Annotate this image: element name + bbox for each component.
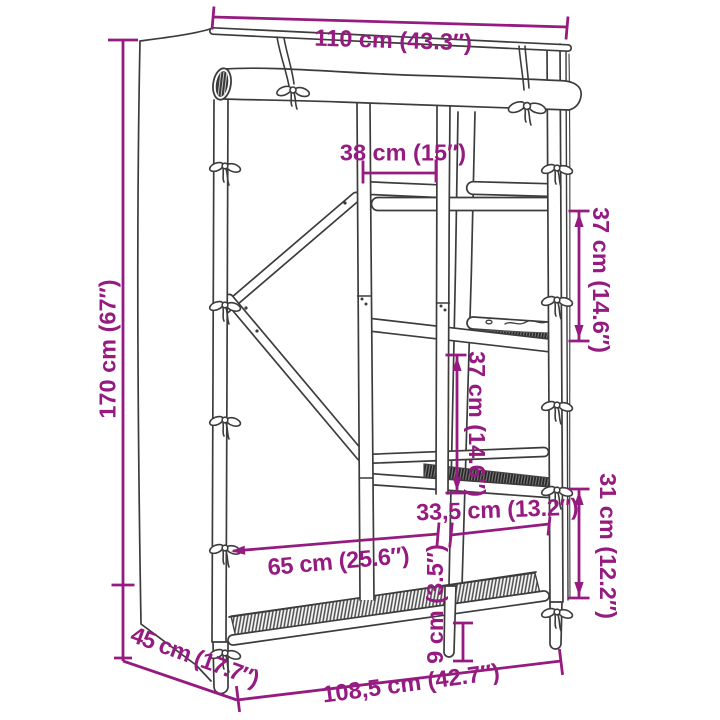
svg-text:9 cm (3.5″): 9 cm (3.5″): [422, 544, 448, 664]
svg-text:170 cm (67″): 170 cm (67″): [95, 279, 121, 418]
svg-text:38 cm (15″): 38 cm (15″): [340, 140, 466, 166]
svg-text:37 cm (14.6″): 37 cm (14.6″): [588, 207, 614, 353]
svg-text:31 cm (12.2″): 31 cm (12.2″): [595, 473, 621, 619]
svg-text:110 cm (43.3″): 110 cm (43.3″): [314, 25, 472, 56]
svg-text:37 cm (14.6″): 37 cm (14.6″): [464, 351, 490, 497]
